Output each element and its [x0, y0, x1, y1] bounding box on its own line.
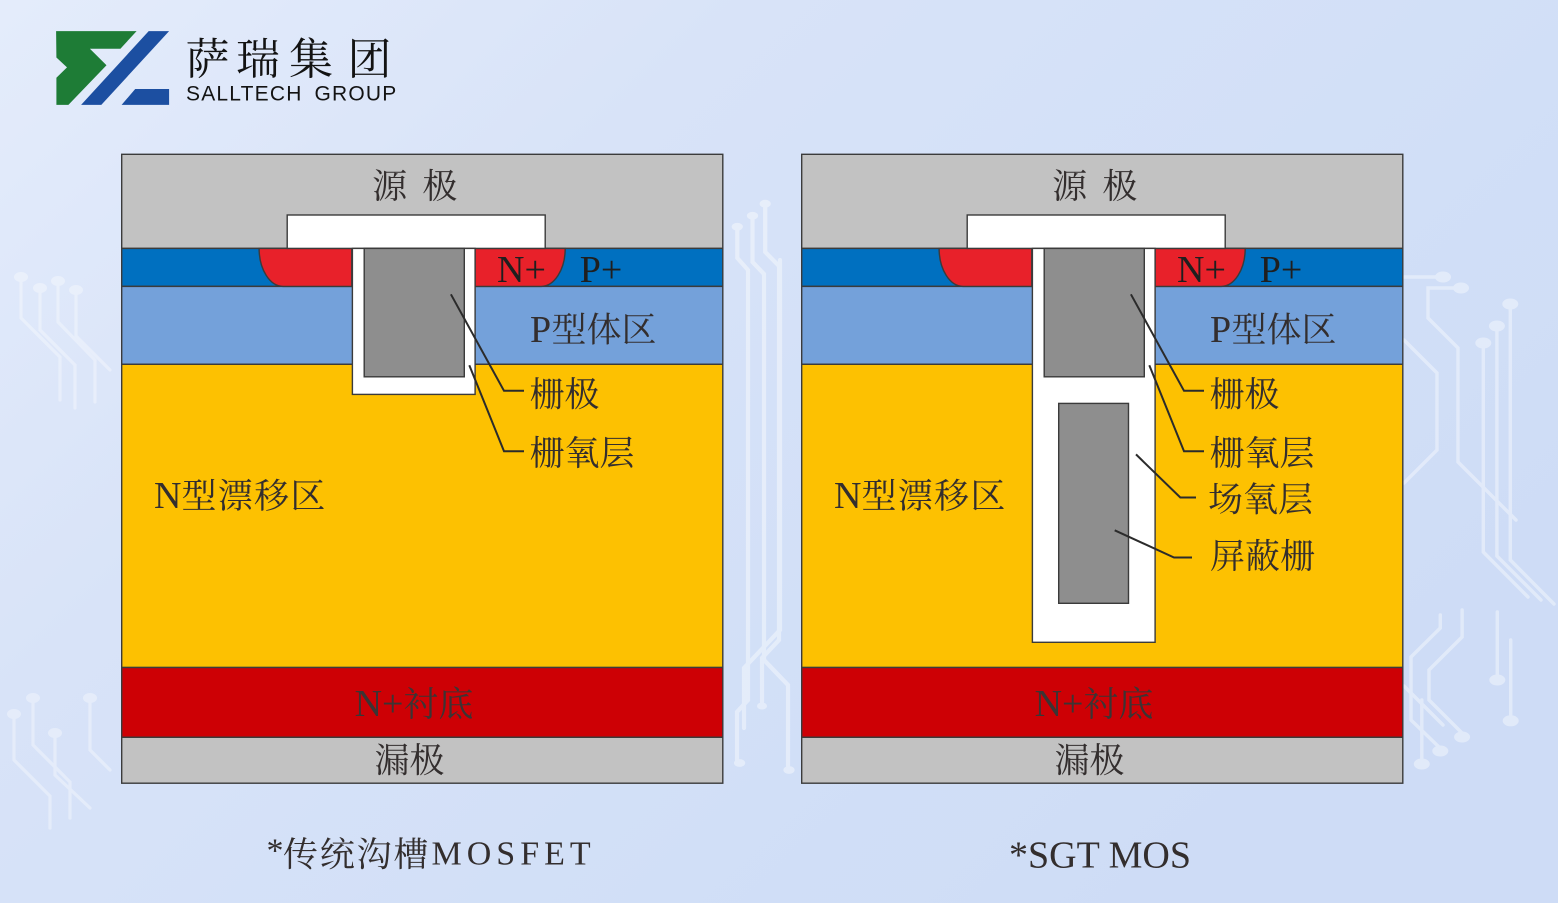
svg-text:N: N: [154, 475, 181, 517]
svg-text:N+: N+: [1177, 249, 1226, 291]
svg-text:GROUP: GROUP: [315, 83, 398, 106]
svg-text:*SGT MOS: *SGT MOS: [1009, 834, 1191, 876]
svg-text:N: N: [834, 475, 861, 517]
svg-text:N+: N+: [1035, 683, 1084, 725]
svg-text:P+: P+: [580, 249, 623, 291]
svg-text:MOSFET: MOSFET: [432, 836, 596, 873]
svg-text:SALLTECH: SALLTECH: [186, 83, 303, 106]
svg-text:*: *: [267, 833, 284, 870]
svg-text:P: P: [530, 309, 551, 351]
svg-text:P: P: [1210, 309, 1231, 351]
svg-text:N+: N+: [355, 683, 404, 725]
svg-text:P+: P+: [1260, 249, 1303, 291]
svg-text:N+: N+: [497, 249, 546, 291]
